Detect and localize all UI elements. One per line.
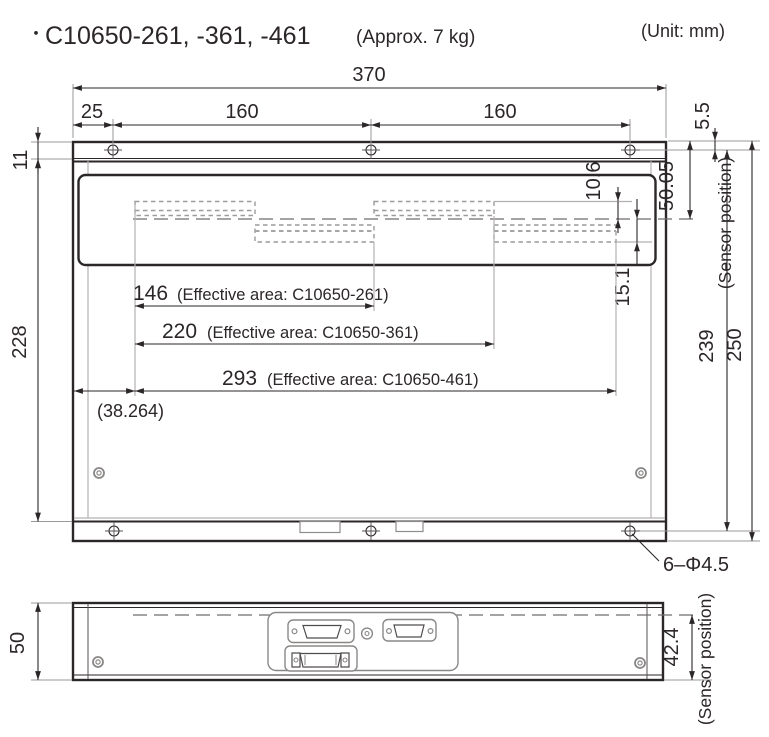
dim-sensor-start-ref: (38.264) — [97, 401, 164, 421]
dim-mounting-holes: 6–Φ4.5 — [663, 554, 729, 576]
front-panel — [79, 175, 656, 265]
dim-effective-361-value: 220 — [162, 320, 197, 343]
dim-effective-461-label: (Effective area: C10650-461) — [267, 371, 479, 389]
dsub9-connector-icon — [383, 620, 436, 642]
dim-overall-height: 250 — [724, 328, 746, 361]
title-bullet: ・ — [27, 24, 45, 44]
dim-side-height: 50 — [7, 632, 29, 654]
dim-sensor-from-bottom: 42.4 — [661, 628, 683, 667]
dim-effective-461-value: 293 — [222, 367, 257, 390]
dim-hole-pitch-1: 160 — [225, 101, 258, 123]
dim-effective-261-value: 146 — [133, 282, 168, 305]
unit-note: (Unit: mm) — [641, 21, 725, 41]
dim-flange-height: 11 — [10, 150, 32, 171]
bottom-notch — [396, 522, 423, 532]
model-numbers: C10650-261, -361, -461 — [45, 22, 310, 50]
sensor-position-label-front: (Sensor position) — [715, 157, 735, 289]
dimensional-drawing: ・ C10650-261, -361, -461 (Approx. 7 kg) … — [0, 0, 769, 737]
dim-inner-height: 239 — [696, 329, 718, 362]
dim-strip-upper: 10.6 — [583, 162, 605, 201]
bottom-notch — [300, 522, 340, 533]
dim-effective-361-label: (Effective area: C10650-361) — [207, 324, 419, 342]
dim-strip-lower: 15.1 — [612, 268, 634, 307]
dim-hole-offset: 25 — [81, 101, 103, 123]
drawing-canvas: ・ C10650-261, -361, -461 (Approx. 7 kg) … — [0, 0, 769, 737]
dim-hole-edge-offset: 5.5 — [692, 102, 714, 130]
dim-sensor-from-top: 50.05 — [656, 161, 678, 211]
sensor-position-label-side: (Sensor position) — [695, 593, 715, 725]
dsub15-connector-icon — [288, 620, 354, 643]
title-block: ・ C10650-261, -361, -461 (Approx. 7 kg) … — [27, 21, 725, 50]
dim-effective-261-label: (Effective area: C10650-261) — [177, 286, 389, 304]
cameralink-connector-icon — [285, 646, 357, 671]
side-view — [73, 603, 694, 680]
dim-body-height: 228 — [9, 325, 31, 358]
weight-note: (Approx. 7 kg) — [356, 27, 475, 48]
dim-hole-pitch-2: 160 — [483, 101, 516, 123]
dim-overall-width: 370 — [352, 64, 385, 86]
